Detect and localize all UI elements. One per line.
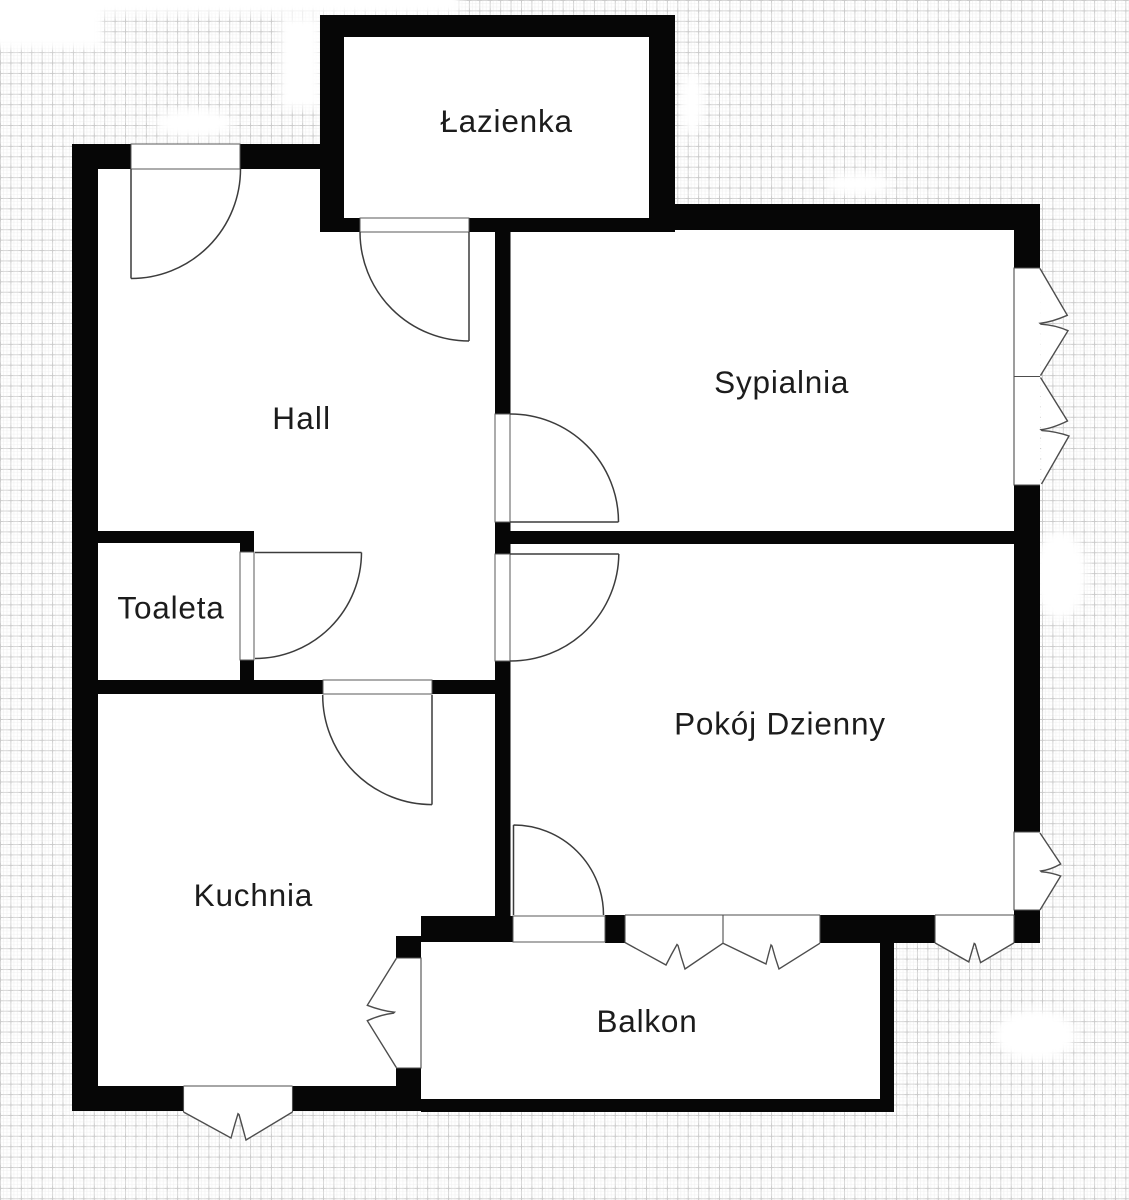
svg-text:Hall: Hall <box>272 400 331 436</box>
svg-text:Pokój Dzienny: Pokój Dzienny <box>674 706 886 742</box>
svg-text:Łazienka: Łazienka <box>440 103 573 139</box>
svg-text:Sypialnia: Sypialnia <box>714 364 849 400</box>
svg-text:Balkon: Balkon <box>596 1003 697 1039</box>
svg-text:Toaleta: Toaleta <box>117 589 224 625</box>
svg-text:Kuchnia: Kuchnia <box>194 877 313 913</box>
